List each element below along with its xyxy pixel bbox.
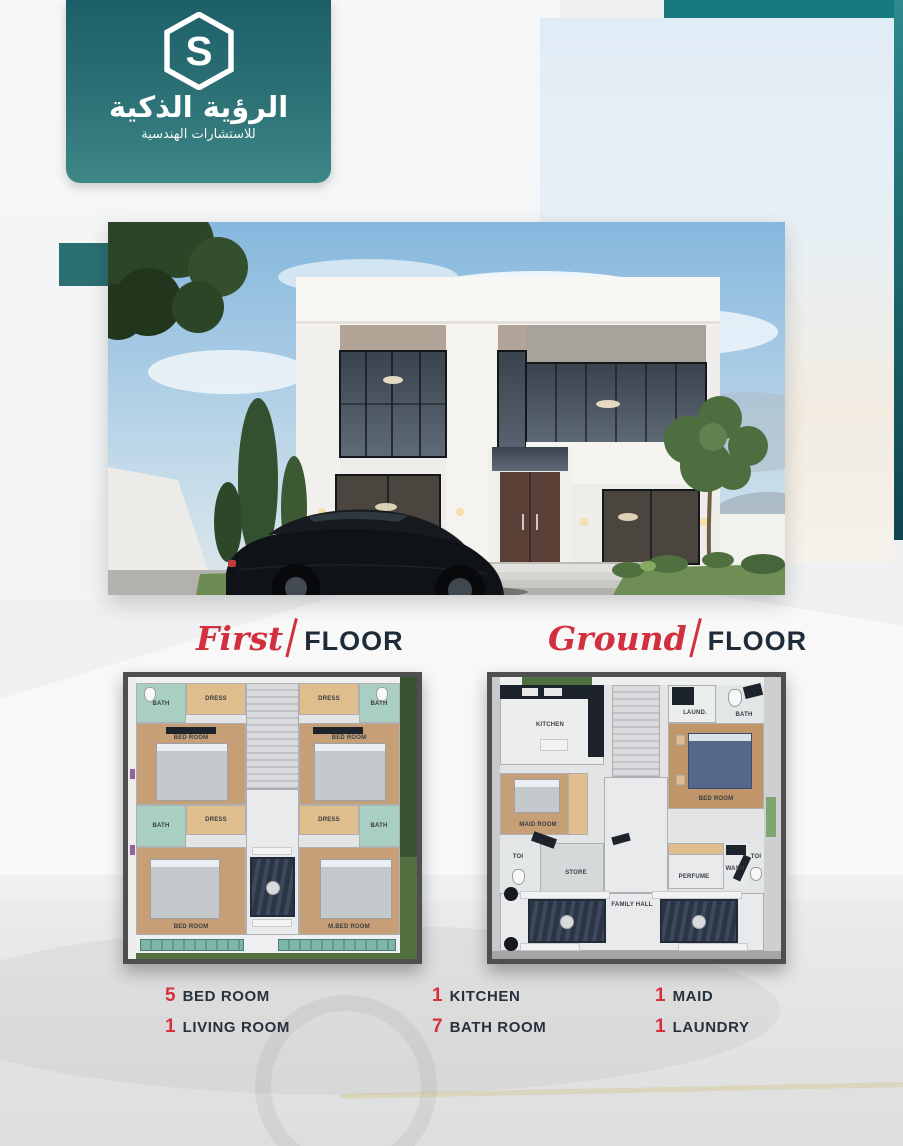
appliance-graphic [544,688,562,696]
stat-label: MAID [673,988,714,1005]
stat-label: LIVING ROOM [183,1019,290,1036]
poster-page: S الرؤية الذكية للاستشارات الهندسية [0,0,903,1146]
room-label: BED ROOM [174,735,209,741]
bed-graphic [514,779,560,813]
nightstand-graphic [676,735,685,745]
stat-living-room: 1 LIVING ROOM [165,1016,290,1038]
villa-render-image [108,222,785,595]
table-graphic [266,881,280,895]
ground-floor-plan: KITCHEN LAUND. BATH BED ROOM MAID ROOM T… [487,672,786,964]
first-floor-plan: DRESS BATH BED ROOM DRESS BATH BED ROOM … [123,672,422,964]
room-label: PERFUME [679,874,710,880]
title-slash [285,618,298,658]
lawn-bottom [136,953,400,959]
toilet-graphic [750,867,762,881]
kitchen-island [540,739,568,751]
room-label: BED ROOM [332,735,367,741]
hedge-right [400,677,417,857]
logo-letter: S [185,28,212,74]
room-label: DRESS [318,817,340,823]
wall-left [492,677,500,959]
room-label: WASH [726,866,745,872]
ground-floor-title: Ground FLOOR [548,610,807,657]
sofa-graphic [252,847,292,855]
toilet-graphic [376,687,388,702]
lawn-right [400,857,417,959]
sofa-graphic [678,943,748,951]
stat-label: BATH ROOM [450,1019,547,1036]
stat-count: 7 [432,1016,443,1038]
first-floor-plan-inner: DRESS BATH BED ROOM DRESS BATH BED ROOM … [128,677,417,959]
washer-graphic [672,687,694,705]
logo-title-arabic: الرؤية الذكية [66,92,331,122]
wardrobe-graphic [568,773,588,835]
room-label: TOI [751,854,762,860]
room-label: BATH [152,701,169,707]
room-label: LAUND. [683,710,707,716]
stat-count: 5 [165,985,176,1007]
first-floor-word: FLOOR [304,626,404,657]
stat-label: KITCHEN [450,988,521,1005]
stat-laundry: 1 LAUNDRY [655,1016,750,1038]
room-label: DRESS [318,696,340,702]
toilet-graphic [728,689,742,707]
toi-left [500,843,540,893]
sofa-graphic [652,891,742,899]
toilet-graphic [144,687,156,702]
room-label: DRESS [205,696,227,702]
ground-floor-word: FLOOR [708,626,808,657]
stat-bedrooms: 5 BED ROOM [165,985,270,1007]
bed-graphic [320,859,392,919]
sofa-graphic [520,943,580,951]
wall-bottom [492,951,781,959]
sofa-graphic [252,919,292,927]
table-graphic [692,915,706,929]
room-label: M.BED ROOM [328,924,370,930]
kitchen-counter-side [588,699,604,757]
first-floor-script: First [196,622,283,655]
room-label: BED ROOM [174,924,209,930]
stat-bathrooms: 7 BATH ROOM [432,1016,546,1038]
bed-graphic [314,743,386,801]
teal-frame-right [894,0,903,540]
plant-pot-graphic [504,937,518,951]
stat-count: 1 [165,1016,176,1038]
bed-graphic [150,859,220,919]
bed-graphic [688,733,752,789]
stat-count: 1 [655,1016,666,1038]
room-label: KITCHEN [536,722,564,728]
stairs [612,685,660,777]
room-label: BATH [735,712,752,718]
stairs [246,683,299,789]
teal-frame-top [664,0,903,18]
room-label: BED ROOM [699,796,734,802]
room-label: BATH [370,823,387,829]
room-label: STORE [565,870,587,876]
balcony-glass [278,939,396,951]
stat-kitchen: 1 KITCHEN [432,985,520,1007]
toilet-graphic [512,869,525,885]
tv-graphic [313,727,363,734]
logo-card: S الرؤية الذكية للاستشارات الهندسية [66,0,331,183]
bed-graphic [156,743,228,801]
ground-floor-plan-inner: KITCHEN LAUND. BATH BED ROOM MAID ROOM T… [492,677,781,959]
stat-label: LAUNDRY [673,1019,750,1036]
tv-graphic [166,727,216,734]
logo-hexagon-icon: S [160,12,238,90]
room-label: BATH [152,823,169,829]
logo-subtitle-arabic: للاستشارات الهندسية [66,127,331,142]
table-graphic [560,915,574,929]
title-slash [689,618,702,658]
first-floor-title: First FLOOR [196,610,404,657]
stat-maid: 1 MAID [655,985,713,1007]
ground-floor-script: Ground [548,622,687,655]
stat-label: BED ROOM [183,988,270,1005]
room-label: FAMILY HALL [611,902,652,908]
corridor [604,777,668,893]
sofa-graphic [520,891,610,899]
appliance-graphic [522,688,538,696]
flower-graphic [130,845,135,855]
wall-left [128,677,136,959]
room-label: DRESS [205,817,227,823]
room-label: MAID ROOM [519,822,556,828]
store [540,843,604,893]
toi-right [748,843,764,889]
balcony-glass [140,939,244,951]
room-label: BATH [370,701,387,707]
stat-count: 1 [655,985,666,1007]
perfume-cabinet [668,843,724,855]
room-label: TOI [513,854,524,860]
window-green [766,797,776,837]
kitchen-window-green [522,677,592,685]
flower-graphic [130,769,135,779]
stat-count: 1 [432,985,443,1007]
teal-accent-square [59,243,109,286]
plant-pot-graphic [504,887,518,901]
nightstand-graphic [676,775,685,785]
